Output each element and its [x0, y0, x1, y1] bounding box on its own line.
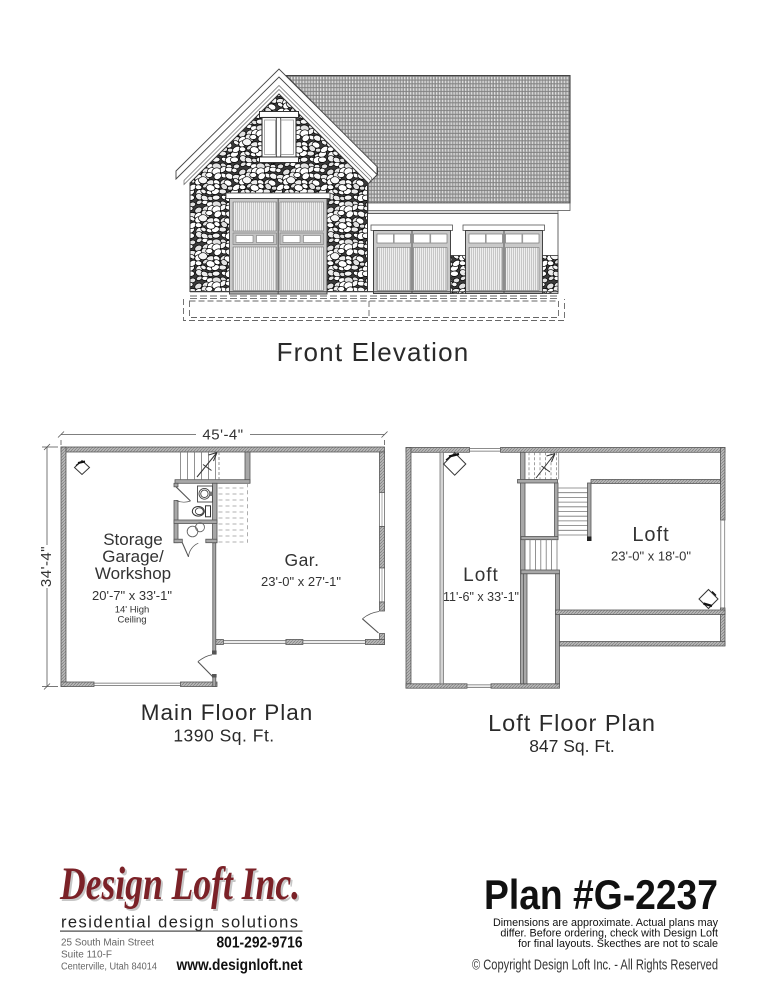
svg-text:Suite 110-F: Suite 110-F: [61, 950, 112, 961]
svg-text:Loft: Loft: [632, 524, 669, 546]
svg-text:Loft Floor Plan: Loft Floor Plan: [488, 710, 656, 736]
svg-text:1390 Sq. Ft.: 1390 Sq. Ft.: [173, 726, 274, 746]
svg-text:Plan #G-2237: Plan #G-2237: [484, 871, 718, 918]
svg-text:Design Loft Inc.: Design Loft Inc.: [59, 858, 300, 910]
svg-text:20'-7" x 33'-1": 20'-7" x 33'-1": [92, 588, 172, 603]
svg-text:801-292-9716: 801-292-9716: [217, 935, 303, 952]
svg-text:© Copyright Design Loft Inc.: © Copyright Design Loft Inc. - All Right…: [472, 958, 718, 974]
svg-text:Loft: Loft: [463, 565, 499, 586]
svg-text:Centerville, Utah 84014: Centerville, Utah 84014: [61, 962, 157, 973]
svg-text:847 Sq. Ft.: 847 Sq. Ft.: [529, 736, 615, 756]
svg-text:23'-0" x 18'-0": 23'-0" x 18'-0": [611, 549, 691, 564]
svg-text:residential design solutions: residential design solutions: [61, 914, 301, 932]
svg-text:www.designloft.net: www.designloft.net: [176, 957, 303, 974]
svg-text:Main Floor Plan: Main Floor Plan: [141, 700, 314, 725]
svg-text:Front Elevation: Front Elevation: [277, 337, 470, 367]
svg-text:11'-6" x 33'-1": 11'-6" x 33'-1": [443, 590, 519, 604]
svg-text:45'-4": 45'-4": [202, 427, 243, 444]
svg-text:34'-4": 34'-4": [38, 546, 55, 587]
svg-text:Gar.: Gar.: [284, 550, 319, 570]
svg-text:25 South Main Street: 25 South Main Street: [61, 938, 154, 949]
svg-text:for final layouts. Skecthes a: for final layouts. Skecthes are not to s…: [518, 938, 718, 950]
svg-text:23'-0" x 27'-1": 23'-0" x 27'-1": [261, 574, 341, 589]
svg-text:Workshop: Workshop: [95, 564, 171, 583]
svg-text:Ceiling: Ceiling: [117, 615, 146, 626]
